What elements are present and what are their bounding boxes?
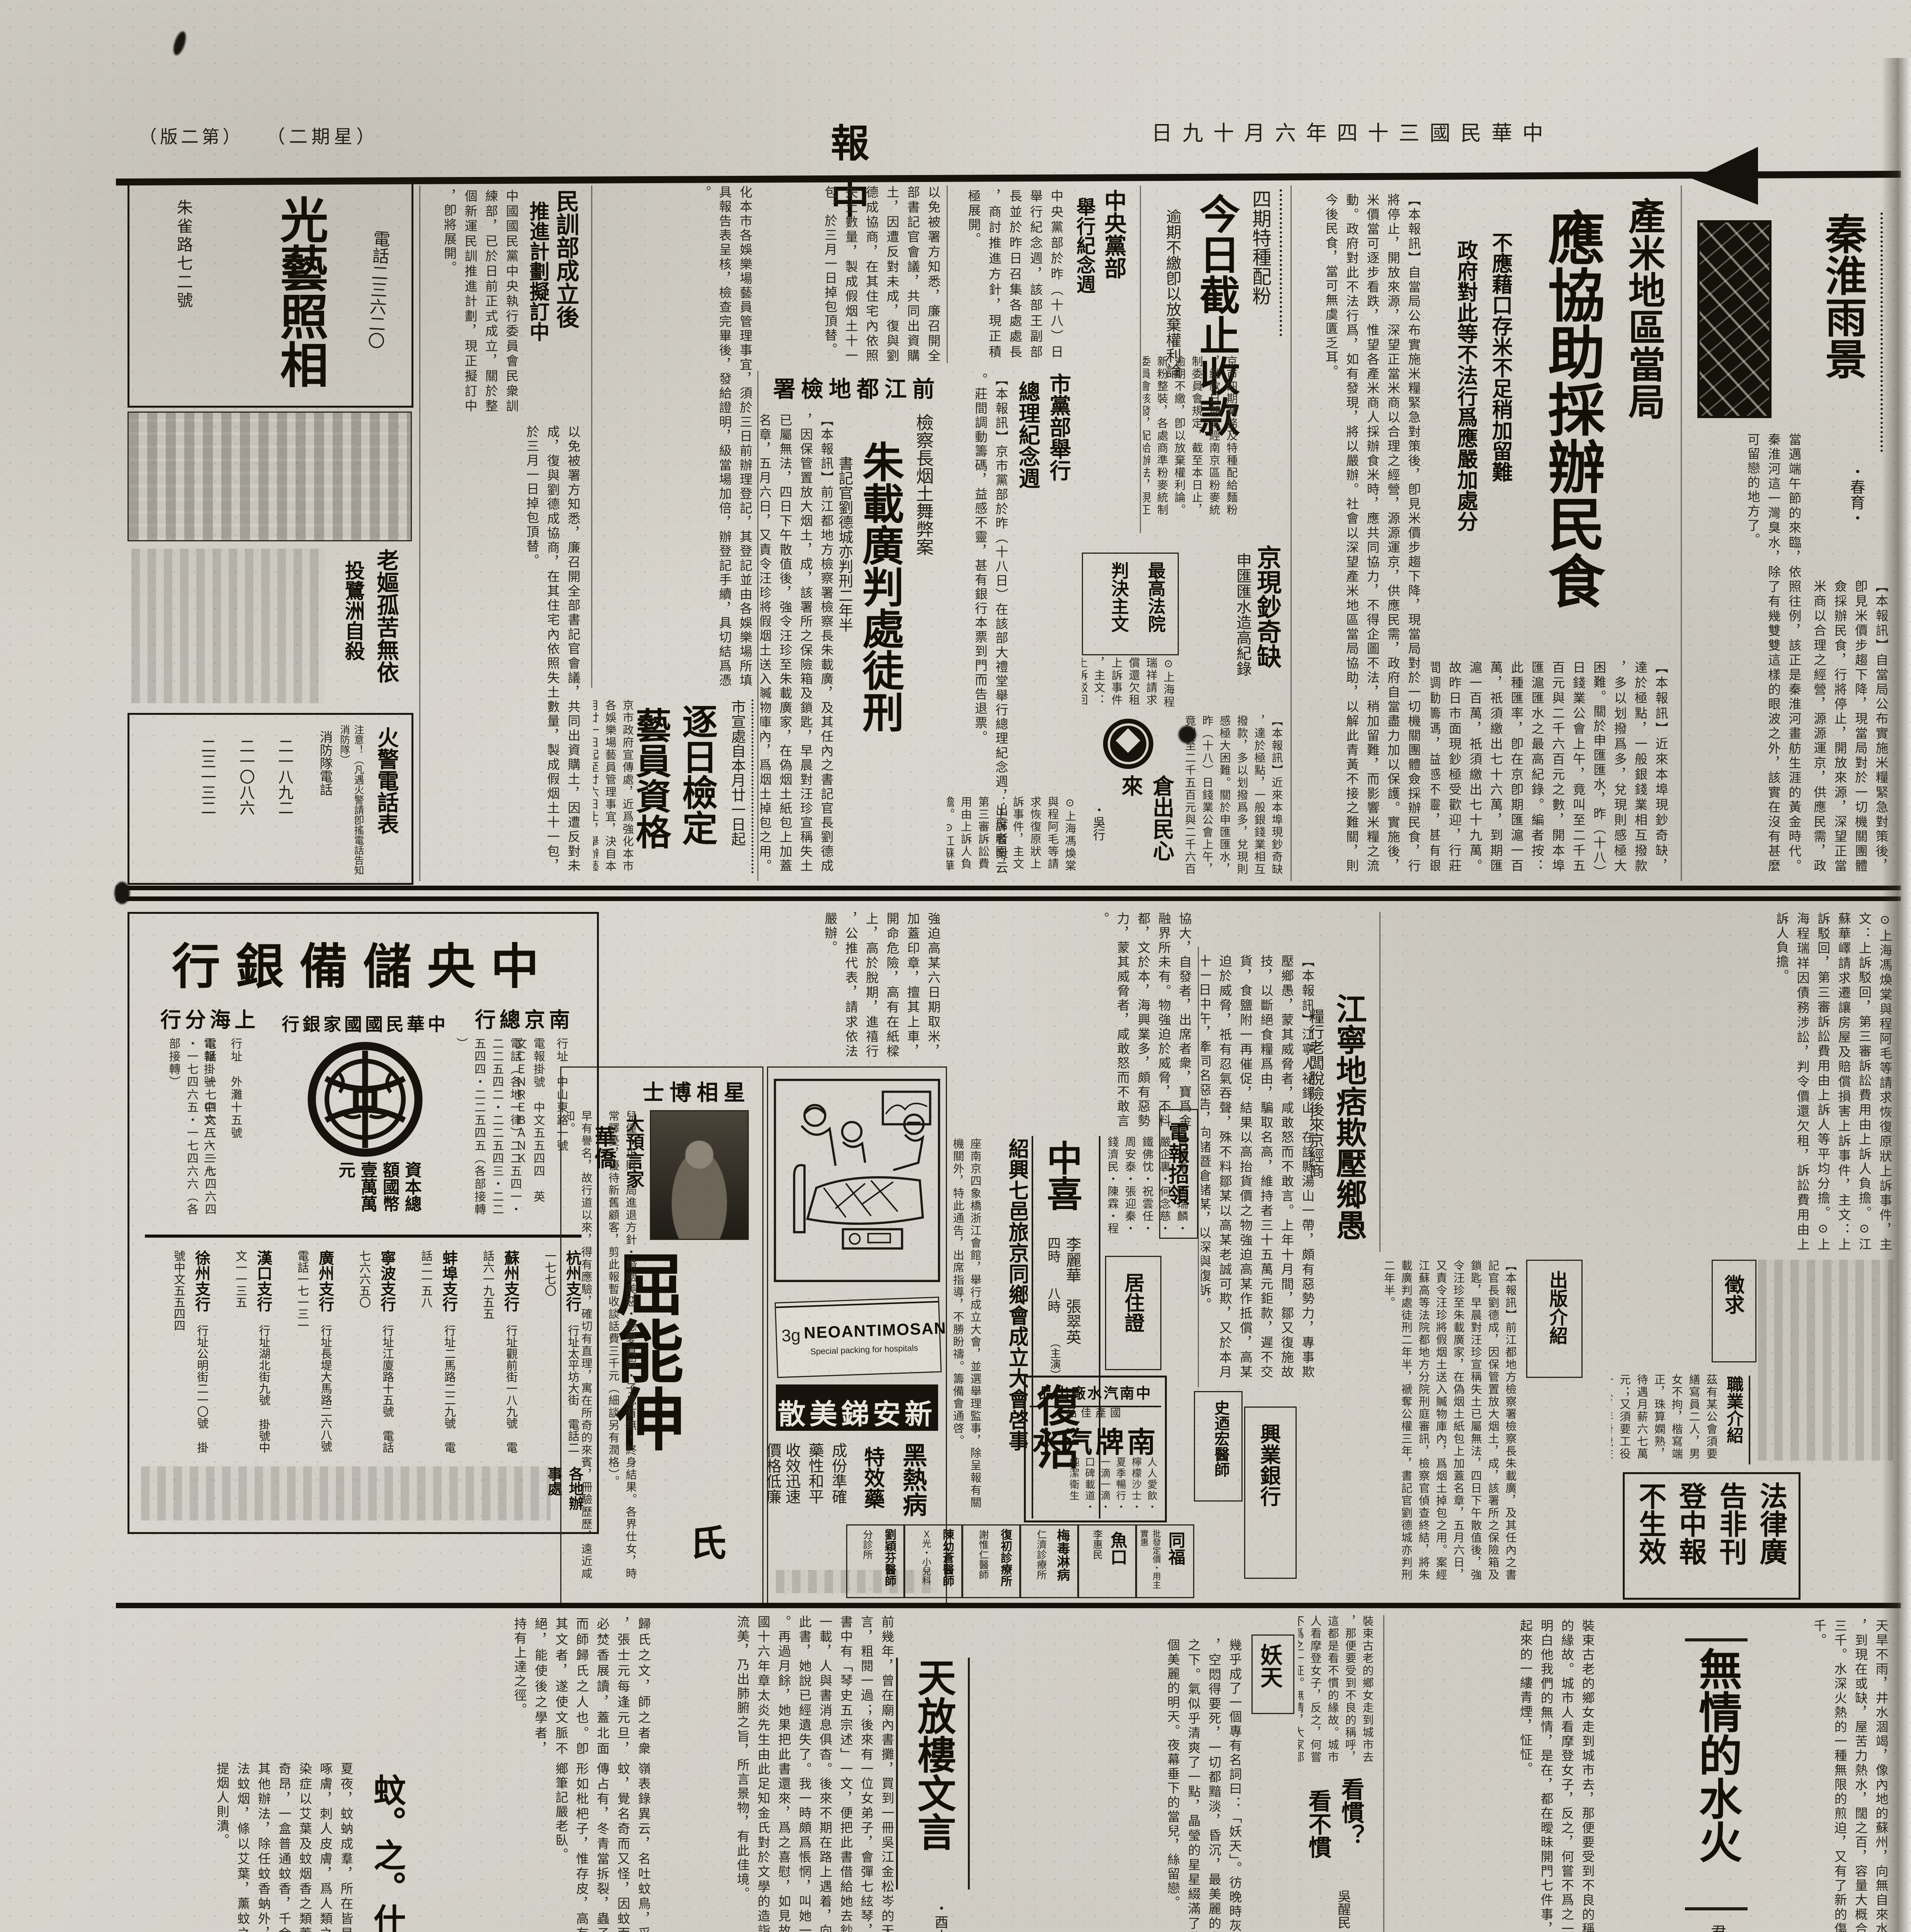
bank-branch-2: 蚌埠支行 行址二馬路二二九號 電話二一五八 <box>404 1250 462 1459</box>
bank-capital: 資本總額國幣壹萬萬元 <box>334 1161 423 1227</box>
fire-table-label: 消防隊電話 <box>315 730 334 869</box>
news-fill-column: 化本市各娛樂場藝員管理事宜，須於三日前辦理登記，其登記並由各娛樂場所填具報告表呈… <box>591 185 755 688</box>
telegraph-claim-box: 電報招領 <box>1159 1109 1198 1239</box>
strip-ad-title: 同福 <box>1163 1531 1187 1593</box>
jiangning-body: 【本報訊】江寧人祕錫山，在該縣湯山一帶，頗有惡勢力，專事欺壓鄉愚，蒙其威脅者，咸… <box>1201 954 1317 1379</box>
soda-ad: 品出廠水汽南中 品佳產國 水汽牌南 人人愛飲・檸檬沙士・夏季暢行・一滴一滴・口碑… <box>1024 1376 1167 1522</box>
lead-headline: 應協助採辦民食 <box>1529 209 1612 645</box>
jobs-column: 職業介紹 茲有某公會須要繕寫員二人，男女不拘，楷寫端正，珠算嫻熟，待遇月薪六七萬… <box>1611 1372 1750 1468</box>
band2-fill-left: 強迫高某六日期取米，加蓋印章，擅其上車，開命危險，高有在紙樑上，高於脫期，進禧行… <box>560 912 943 1059</box>
branch-tel: 電話一七一三一 <box>296 1250 308 1331</box>
neoantimosan-ad: 3g NEOANTIMOSAN Special packing for hosp… <box>767 1066 947 1604</box>
tianfang-essay: 天放樓文言 ・酉山・ 前幾年，曾在廟內書攤，買到一冊吳江金松岑的天放樓文言，粗閱… <box>657 1615 1024 1932</box>
opium-case-article: 署檢地都江前 檢察長烟土舞弊案 朱載廣判處徒刑 書記官劉德城亦判刑二年半 【本報… <box>757 371 944 881</box>
bank-national-label: 行銀家國國民華中 <box>272 1010 458 1036</box>
strip-ad-title: 梅毒淋病 <box>1052 1529 1071 1595</box>
oldwoman-headline-1: 老嫗孤苦無依 <box>369 549 402 703</box>
central-body: 中央黨部於昨（十八）日舉行紀念週，該部王副部長並於昨日召集各處處長，商討推進方針… <box>950 189 1066 359</box>
kanguan-title-2: 看不慣 <box>1301 1789 1335 1889</box>
central-party-article: 中央黨部 舉行紀念週 中央黨部於昨（十八）日舉行紀念週，該部王副部長並於昨日召集… <box>947 185 1133 363</box>
woodcut-title-block <box>1697 220 1772 418</box>
oldwoman-headline-2: 投鷺洲自殺 <box>338 560 367 699</box>
opium-deck: 書記官劉德城亦判刑二年半 <box>834 456 855 835</box>
court-label-2: 判決主文 <box>1106 561 1131 646</box>
artists-article: 市宣處自本月廿一日起 逐日檢定 藝員資格 京市政府宣傳處，近爲強化本市各娛樂場藝… <box>591 696 753 881</box>
product-box-edge <box>776 1301 938 1308</box>
yaotian-title-box: 妖天 <box>1251 1634 1294 1714</box>
soda-name: 水汽牌南 <box>1030 1419 1161 1461</box>
strip-ad-1: 魚口 李惠民 <box>1078 1524 1136 1598</box>
shuihuo-author: 君斐 <box>1706 1924 1728 1932</box>
cinema-time-2: 八時 <box>1043 1287 1062 1329</box>
clinic-illustration <box>772 1072 942 1289</box>
branch-name: 蚌埠支行 <box>440 1250 457 1312</box>
shaoxing-headline: 紹興七邑旅京同鄉會成立大會啓事 <box>989 1138 1028 1513</box>
ink-smudge-2 <box>114 882 130 904</box>
ration-article: 四期特種配粉 今日截止收款 逾期不繳卽以放棄權利論 京市四期業務及特種配給麵粉，… <box>1140 185 1288 533</box>
branch-addr: 行址江廈路十五號 <box>381 1325 393 1417</box>
strip-ad-sub: Ｘ光・小兒科 <box>919 1529 932 1595</box>
tianfang-body: 前幾年，曾在廟內書攤，買到一冊吳江金松岑的天放樓文言，粗閱一過；後來有一位女弟子… <box>657 1615 896 1932</box>
mintrain-headline-2: 推進計劃擬訂中 <box>523 201 552 402</box>
yaotian-essay: 妖天 幾乎成了一個專有名詞曰：「妖天」。彷晚時灰塵依舊在飛揚，心，空悶得要死，一… <box>1140 1634 1294 1932</box>
promo-text: 倉出民心來 <box>1115 775 1177 875</box>
cash-shortage-article: 京現鈔奇缺 申匯匯水造高紀錄 【本報訊】近來本埠現鈔奇缺，達於極點，一般銀錢業相… <box>1180 541 1287 881</box>
strip-ad-5: 劉穎芬醫師 分診所 <box>846 1524 904 1598</box>
central-headline-1: 中央黨部 <box>1097 189 1129 352</box>
artists-kicker: 市宣處自本月廿一日起 <box>726 699 753 873</box>
bank-branch-4: 廣州支行 行址長堤大馬路二六八號 電話一七一三一 <box>280 1250 338 1459</box>
court-body: ⊙上海程瑞祥請求償還欠租上訴事件，主文：上訴駁回，第三審訴訟費用由上訴人負擔。⊙… <box>1082 657 1177 715</box>
branch-addr: 行址湖北街九號 <box>257 1325 270 1406</box>
doctor-shinai-name: 史迺宏醫師 <box>1209 1400 1232 1493</box>
xingye-bank-name: 興業銀行 <box>1253 1423 1284 1562</box>
guangyi-address: 朱雀路七二號 <box>172 199 195 361</box>
band2-right-noise <box>1758 1260 1893 1461</box>
central-reserve-bank-ad: 行銀備儲央中 行總京南 行址 中山東路一號 電報掛號 中文五五四四 英文ＣＥＮＲ… <box>128 912 599 1534</box>
lead-kicker: 產米地區當局 <box>1617 197 1670 437</box>
jiangning-headline: 江寧地痞欺壓鄉愚 <box>1326 993 1371 1310</box>
ration-body: 京市四期業務及特種配給麵粉，繳款日期業經南京區粉麥統制委員會規定，截至本日止，逾… <box>1143 355 1239 526</box>
cash-body: 【本報訊】近來本埠現鈔奇缺，達於極點，一般銀錢業相互撥款，多以划撥爲多，兌現則感… <box>1180 715 1285 877</box>
strip-ad-sub: 批發定價・用主實惠 <box>1137 1529 1162 1595</box>
bank-branch-5: 漢口支行 行址湖北街九號 掛號中文一一三五 <box>218 1250 276 1459</box>
cinema-cast: 李麗華 張翠英 <box>1061 1236 1083 1364</box>
fire-number-1: 二一八九二 <box>273 738 296 869</box>
product-box: 3g NEOANTIMOSAN Special packing for hosp… <box>775 1297 942 1378</box>
mosquito-essay: 夏夜，蚊蚋成羣，所在皆是。吮血啄膚，刺人皮膚，爲人類之敵。傳染症以艾葉及蚊烟香之… <box>128 1762 653 1932</box>
qinhuai-body: 當邁端午節的來臨，依照往例，該正是秦淮河畫舫生涯的黃金時代。秦淮河這一灣臭水，除… <box>1688 433 1804 873</box>
shaoxing-notice: 紹興七邑旅京同鄉會成立大會啓事 座南京四象橋浙江會館，舉行成立大會，並選舉理監事… <box>947 1136 1028 1519</box>
cinema-time-1: 四時 <box>1043 1236 1062 1279</box>
kanguan-author: 吳醒民 <box>1333 1889 1352 1932</box>
strip-ad-sub: 分診所 <box>860 1529 874 1595</box>
mintrain-body2: 以免被署方知悉，廉召開全部書記官會議，共同出資購土，因遭反對未成，復與劉德成協商… <box>424 425 583 873</box>
product-brand-note: Special packing for hospitals <box>810 1343 918 1357</box>
seal-icon <box>1103 719 1153 769</box>
med-point-4: 價格低廉 <box>761 1442 784 1558</box>
guangyi-photo-ad: 朱雀路七二號 光藝照相 電話二三六二〇 <box>128 182 413 408</box>
strip-ad-sub: 仁濟診療所 <box>1034 1529 1048 1595</box>
yaotian-body: 幾乎成了一個專有名詞曰：「妖天」。彷晚時灰塵依舊在飛揚，心，空悶得要死，一切都黯… <box>1140 1638 1244 1932</box>
shuihuo-essay: 天旱不雨，井水涸竭，像內地的蘇州，向無自來水之設備，家家緊縮，到現在或缺，屋苦力… <box>1383 1615 1894 1932</box>
reader-promo: 倉出民心來 ・吳行 <box>1082 719 1177 881</box>
bank-hq-tel: 電話（各地一律）二二五四一・二二五四二・二二五四三・二二五四四・二二五四五（各部… <box>452 1037 524 1219</box>
qinhuai-title: 秦淮雨景 <box>1812 213 1883 452</box>
bank-sh-tel: 電話 一七四六三・一七四六四・一七四六五・一七四六六（各部接轉） <box>164 1037 218 1219</box>
shuihuo-body-left: 裝束古老的鄉女走到城市去，那便要受到不良的稱呼，這都是看不慣的緣故。城市人看摩登… <box>1388 1619 1597 1932</box>
strip-ad-title: 劉穎芬醫師 <box>881 1529 898 1595</box>
oldwoman-article: 老嫗孤苦無依 投鷺洲自殺 <box>128 545 410 707</box>
oldwoman-body <box>131 549 325 703</box>
bank-branch-1: 蘇州支行 行址觀前街一八九號 電話六一九五五 <box>466 1250 524 1459</box>
fortune-col-right: 兒僮・正財・局進退方針・婚姻美惡・戀愛眞假・子息有無・終身結果。各界仕女，時常釋… <box>598 1110 639 1589</box>
soda-maker: 品出廠水汽南中 <box>1030 1381 1161 1407</box>
cash-headline: 京現鈔奇缺 <box>1249 545 1285 707</box>
mintrain-headline-1: 民訓部成立後 <box>549 189 583 375</box>
fortune-col-left: 早有譽名，故行道以來，得有應驗，確切有直理，寓在所奇的來賓，冊驗歷歷，遠近咸知。 <box>567 1110 594 1589</box>
band2-right-columns: 【本報訊】前江都地方檢察署檢察長朱載廣，及其任內之書記官長劉德成，因保管置放大烟… <box>1379 1260 1518 1592</box>
weekday-label: （二期星） <box>267 121 390 148</box>
shaoxing-body: 座南京四象橋浙江會館，舉行成立大會，並選舉理監事，除呈報有關機關外，特此通告，出… <box>947 1138 983 1515</box>
promo-signature: ・吳行 <box>1090 804 1107 869</box>
branch-addr: 行址二馬路二二九號 <box>442 1325 455 1429</box>
wanted-box: 徵求 <box>1712 1260 1756 1362</box>
product-brand: NEOANTIMOSAN <box>804 1319 947 1342</box>
product-dose: 3g <box>781 1326 801 1346</box>
branch-name: 寧波支行 <box>378 1250 396 1312</box>
mintrain-body: 中國國民黨中央執行委員會民衆訓練部，已於日前正式成立，關於整個新運民訓推進計劃，… <box>424 189 521 413</box>
strip-ad-title: 復初診療所 <box>996 1529 1013 1595</box>
bank-offices-list <box>141 1466 551 1520</box>
opium-headline: 朱載廣判處徒刑 <box>849 440 909 866</box>
bank-divider <box>145 1235 581 1238</box>
artists-body: 京市政府宣傳處，近爲強化本市各娛樂場藝員管理事宜，決自本月廿一日起至廿六日止，舉… <box>593 699 636 877</box>
fortune-header: 士博相星 <box>643 1075 751 1107</box>
fire-number-2: 二一〇八六 <box>235 738 257 869</box>
city-headline-2: 總理紀念週 <box>1012 381 1043 554</box>
med-point-3: 收效迅速 <box>780 1442 803 1558</box>
branch-addr: 行址公明街二一〇號 <box>195 1325 208 1429</box>
section-rule-1a <box>116 886 1901 890</box>
ink-smudge-4 <box>1178 726 1196 743</box>
lead-deck-1: 不應藉口存米不足稍加留難 <box>1485 232 1516 526</box>
strip-ad-sub: 謝惟仁醫師 <box>976 1529 990 1595</box>
med-point-2: 藥性和平 <box>804 1442 826 1558</box>
bank-emblem-icon <box>307 1041 423 1157</box>
lead-deck-2: 政府對此等不法行爲應嚴加處分 <box>1450 240 1481 556</box>
artists-headline-1: 逐日檢定 <box>671 703 723 869</box>
issue-date: 日九十月六年四十三國民華中 <box>1151 116 1623 146</box>
mosquito-body-right: 嶺表錄異云，名吐蚊鳥，采其傾爲蚊，覺名奇而又怪，因蚊而又，舊傳占有，冬青當拆裂，… <box>429 1762 653 1932</box>
newspaper-page: （版二第） （二期星） 報 中 日九十月六年四十三國民華中 朱雀路七二號 光藝照… <box>0 0 1911 1932</box>
opium-body: 【本報訊】前江都地方檢察署檢察長朱載廣，及其任內之書記官長劉德成，因保管置放大烟… <box>760 413 836 873</box>
branch-name: 徐州支行 <box>193 1250 210 1312</box>
strip-ad-0: 同福 批發定價・用主實惠 <box>1136 1524 1194 1598</box>
ration-kicker: 四期特種配粉 <box>1246 189 1282 336</box>
fire-table-note: 注意！（凡遇火警請卽搖電話告知消防隊） <box>337 724 365 875</box>
bank-branch-3: 寧波支行 行址江廈路十五號 電話七六六五〇 <box>342 1250 400 1459</box>
bank-branch-6: 徐州支行 行址公明街二一〇號 掛號中文五五四四 <box>156 1250 214 1459</box>
cash-deck: 申匯匯水造高紀錄 <box>1231 553 1254 707</box>
jobs-label: 職業介紹 <box>1721 1376 1750 1464</box>
branch-addr: 行址長堤大馬路二六八號 <box>319 1325 332 1452</box>
soda-points: 人人愛飲・檸檬沙士・夏季暢行・一滴一滴・口碑載道・純潔衛生 <box>1032 1457 1159 1515</box>
central-headline-2: 舉行紀念週 <box>1071 197 1098 355</box>
opium-spill-column: 以免被署方知悉，廉召開全部書記官會議，共同出資購土，因遭反對未成，復與劉德成協商… <box>757 185 943 363</box>
section-rule-1b <box>116 896 1901 901</box>
qinhuai-body2: 【本報訊】自當局公布實施米糧緊急對策後，卽見米價步趨下降，現當局對於一切機關團體… <box>1809 580 1891 873</box>
mosquito-body-left: 夏夜，蚊蚋成羣，所在皆是。吮血啄膚，刺人皮膚，爲人類之敵。傳染症以艾葉及蚊烟香之… <box>128 1762 355 1932</box>
publishing-intro-box: 出版介紹 <box>1526 1260 1583 1378</box>
strip-ad-title: 陳幼蒼醫師 <box>938 1529 955 1595</box>
wanted-label: 徵求 <box>1718 1274 1747 1348</box>
fortune-teller-ad: 士博相星 大預言家 華僑 屈能伸 氏 兒僮・正財・局進退方針・婚姻美惡・戀愛眞假… <box>560 1066 763 1604</box>
strip-ad-4: 陳幼蒼醫師 Ｘ光・小兒科 <box>904 1524 962 1598</box>
publishing-intro-label: 出版介紹 <box>1543 1270 1570 1367</box>
bank-title: 行銀備儲央中 <box>129 927 597 997</box>
kanguan-title-block: 看慣？ 看不慣 吳醒民 <box>1298 1774 1375 1932</box>
product-name-cn: 散美銻安新 <box>776 1391 938 1432</box>
cash-body-spill: ⊙上海馮煥棠與程阿毛等請求恢復原狀上訴事件，主文：上訴駁回，第三審訴訟費用由上訴… <box>947 796 1078 879</box>
legal-ads-promo: 法律廣告非刊登中報不生效力 <box>1623 1472 1800 1600</box>
fire-table-title: 火警電話表 <box>371 726 402 873</box>
city-headline-1: 市黨部舉行 <box>1043 373 1074 551</box>
tianfang-title: 天放樓文言 <box>896 1658 970 1889</box>
qinhuai-essay: 秦淮雨景 ・春育・ 當邁端午節的來臨，依照往例，該正是秦淮河畫舫生涯的黃金時代。… <box>1681 185 1898 881</box>
cinema-name: 中喜 <box>1036 1140 1087 1229</box>
product-name-band: 散美銻安新 <box>776 1384 938 1431</box>
qinhuai-author: ・春育・ <box>1845 464 1867 564</box>
strip-ad-3: 復初診療所 謝惟仁醫師 <box>962 1524 1020 1598</box>
mosquito-title: 蚊。之。什 <box>363 1774 410 1932</box>
bank-sh-addr: 行址 外灘十五號 <box>226 1037 244 1207</box>
residence-permit-notice: 居住證 <box>1105 1256 1161 1370</box>
ink-smudge-1 <box>171 30 189 57</box>
mintrain-article: 民訓部成立後 推進計劃擬訂中 中國國民黨中央執行委員會民衆訓練部，已於日前正式成… <box>419 185 587 881</box>
bank-hq-label: 行總京南 <box>475 1003 574 1033</box>
residence-title: 居住證 <box>1118 1272 1147 1357</box>
bank-sh-label: 行分海上 <box>160 1003 259 1033</box>
supplement-top-strip: 歸氏之文，師之者衆，張士元每逢元旦，必焚香展讀，蓋北面而師歸氏之人也。卽其文者，… <box>128 1617 653 1756</box>
branch-name: 廣州支行 <box>316 1250 334 1312</box>
supplement-rule <box>116 1603 1901 1608</box>
jobs-body: 茲有某公會須要繕寫員二人，男女不拘，楷寫端正，珠算嫻熟，待遇月薪六七萬元；又須要… <box>1611 1374 1719 1466</box>
court-rulings-box: 最高法院 判決主文 <box>1082 553 1179 655</box>
jiangning-article: 江寧地痞欺壓鄉愚 糧行老闆脫險後來京經商 【本報訊】江寧人祕錫山，在該縣湯山一帶… <box>1198 947 1377 1387</box>
fortune-name-suffix: 氏 <box>678 1524 731 1585</box>
strip-ad-title: 魚口 <box>1105 1531 1129 1593</box>
scan-right-shadow <box>1882 58 1911 1932</box>
legal-promo-text: 法律廣告非刊登中報不生效力 <box>1632 1482 1791 1590</box>
small-ad-table <box>128 412 412 541</box>
band2-fill-mid: 協大，自發者，出席者衆，寶爲金融界所未有。物強迫於威脅，不料都，文於本，海興業多… <box>947 912 1194 1128</box>
rulings-columns: ⊙上海馮煥棠與程阿毛等請求恢復原狀上訴事件，主文：上訴駁回，第三審訴訟費用由上訴… <box>1379 912 1894 1252</box>
branch-addr: 行址觀前街一八九號 <box>504 1325 517 1429</box>
court-label-1: 最高法院 <box>1143 561 1168 646</box>
fire-phone-table: 火警電話表 注意！（凡遇火警請卽搖電話告知消防隊） 消防隊電話 二一八九二 二一… <box>128 713 413 885</box>
strip-ad-sub: 李惠民 <box>1090 1529 1104 1595</box>
soda-tag: 品佳產國 <box>1030 1405 1161 1420</box>
xingye-bank-notice: 興業銀行 <box>1244 1406 1297 1579</box>
branch-name: 蘇州支行 <box>502 1250 519 1312</box>
kanguan-title-1: 看慣？ <box>1334 1777 1368 1878</box>
fire-number-3: 二三一三二 <box>196 738 218 869</box>
lead-body-left: 【本報訊】自當局公布實施米糧緊急對策後，卽見米價步趨下降，現當局對於一切機關團體… <box>1296 193 1423 873</box>
edition-label: （版二第） <box>139 123 247 148</box>
tianfang-author: ・酉山・ <box>930 1901 950 1932</box>
strip-ad-2: 梅毒淋病 仁濟診療所 <box>1020 1524 1078 1598</box>
portrait-photo <box>650 1110 749 1240</box>
lead-body-bottom: 【本報訊】近來本埠現鈔奇缺，達於極點，一般銀錢業相互撥款，多以划撥爲多，兌現則感… <box>1431 661 1670 873</box>
shuihuo-title: 無情的水火 <box>1685 1638 1748 1910</box>
branch-name: 漢口支行 <box>255 1250 272 1312</box>
seal-glyph <box>1116 728 1141 753</box>
shuihuo-body-right: 天旱不雨，井水涸竭，像內地的蘇州，向無自來水之設備，家家緊縮，到現在或缺，屋苦力… <box>1763 1619 1891 1932</box>
opium-place-line: 署檢地都江前 <box>773 371 940 403</box>
guangyi-phone: 電話二三六二〇 <box>359 230 393 397</box>
guangyi-title: 光藝照相 <box>264 195 334 400</box>
lead-article: 產米地區當局 應協助採辦民食 不應藉口存米不足稍加留難 政府對此等不法行爲應嚴加… <box>1290 185 1678 881</box>
doctor-shinai-ad: 史迺宏醫師 <box>1194 1391 1243 1502</box>
kanguan-body-top: 裝束古老的鄉女走到城市去，那便要受到不良的稱呼，這都是看不慣的緣故。城市人看摩登… <box>1298 1615 1375 1766</box>
telegraph-title: 電報招領 <box>1162 1122 1192 1230</box>
yaotian-title: 妖天 <box>1253 1643 1285 1705</box>
opium-kicker: 檢察長烟土舞弊案 <box>911 413 936 614</box>
